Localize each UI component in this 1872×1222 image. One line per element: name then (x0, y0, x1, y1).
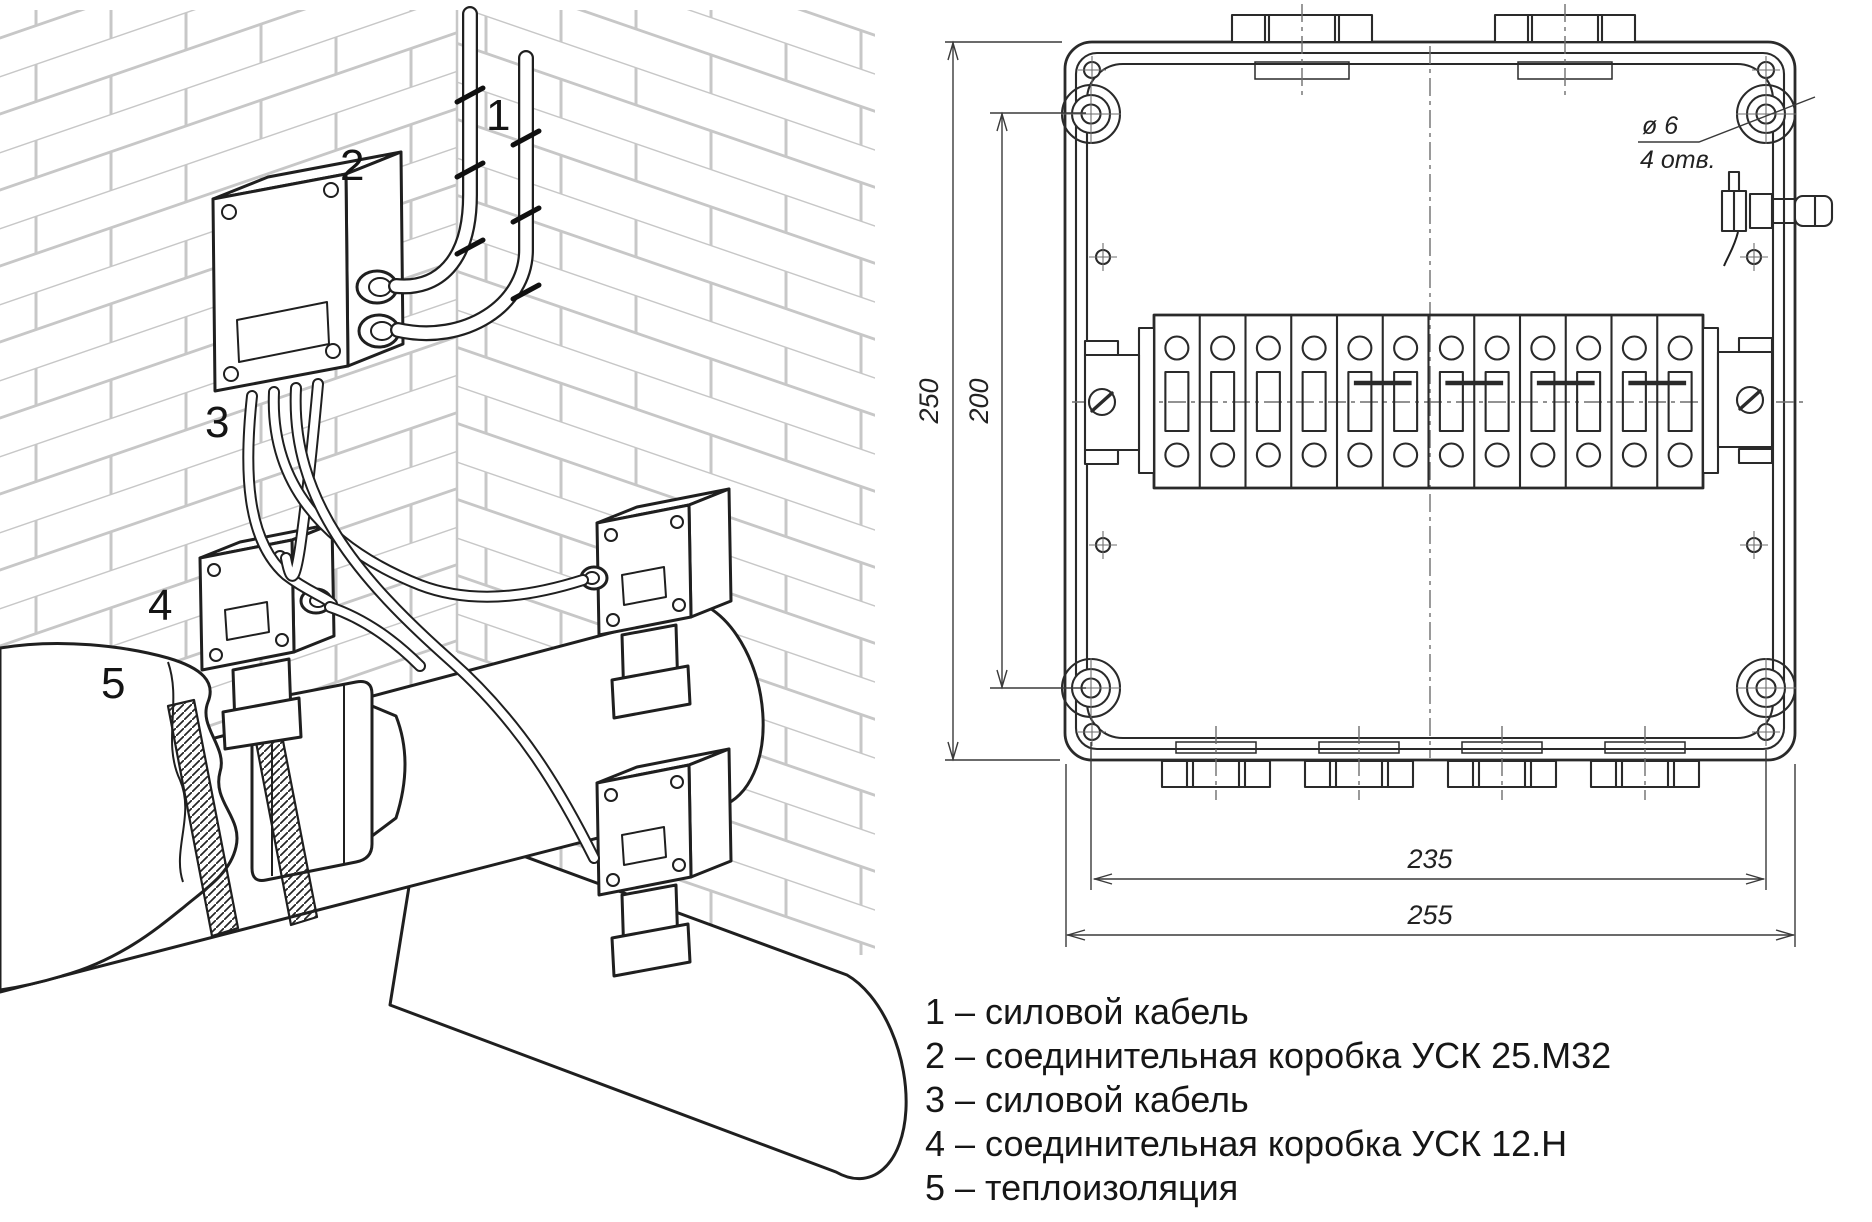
corner-screw (276, 634, 288, 646)
callout-5: 5 (101, 659, 125, 708)
top-gland-bosses (1232, 4, 1635, 96)
legend-item-4: 4 – соединительная коробка УСК 12.Н (925, 1122, 1705, 1166)
corner-screw (607, 874, 619, 886)
box-drawing: 250 200 235 255 ø 6 4 отв. (914, 4, 1832, 947)
installation-figure: 1 2 3 4 5 (0, 0, 1872, 1222)
installation-illustration: 1 2 3 4 5 (0, 10, 906, 1179)
corner-screw (605, 529, 617, 541)
junction-box-usk25 (213, 152, 403, 391)
corner-screw (208, 564, 220, 576)
legend: 1 – силовой кабель 2 – соединительная ко… (925, 990, 1705, 1210)
gland-boss (1232, 4, 1372, 96)
legend-item-2: 2 – соединительная коробка УСК 25.М32 (925, 1034, 1705, 1078)
legend-item-5: 5 – теплоизоляция (925, 1166, 1705, 1210)
dim-height-holes: 200 (964, 378, 994, 424)
corner-screw (673, 859, 685, 871)
rail-end-bracket-left (1085, 328, 1154, 473)
gland-boss (1495, 4, 1635, 96)
dim-width-outer: 255 (1406, 900, 1453, 930)
grounding-bolt (1722, 172, 1832, 266)
hole-note-diameter: ø 6 (1642, 112, 1678, 140)
hole-note-count: 4 отв. (1640, 146, 1716, 174)
dimensions: 250 200 235 255 ø 6 4 отв. (914, 42, 1815, 947)
corner-screw (607, 614, 619, 626)
corner-screw (326, 344, 340, 358)
legend-item-3: 3 – силовой кабель (925, 1078, 1705, 1122)
corner-screw (210, 649, 222, 661)
corner-screw (324, 183, 338, 197)
callout-3: 3 (205, 398, 229, 447)
dim-height-outer: 250 (914, 378, 944, 424)
legend-item-1: 1 – силовой кабель (925, 990, 1705, 1034)
callout-2: 2 (340, 141, 364, 190)
callout-4: 4 (148, 581, 172, 630)
corner-screw (671, 776, 683, 788)
corner-screw (222, 205, 236, 219)
rail-end-bracket-right (1703, 328, 1772, 473)
corner-screw (673, 599, 685, 611)
corner-screw (605, 789, 617, 801)
callout-1: 1 (486, 91, 510, 140)
dim-width-holes: 235 (1406, 844, 1453, 874)
ground-wire (1724, 232, 1738, 266)
corner-screw (671, 516, 683, 528)
corner-screw (224, 367, 238, 381)
